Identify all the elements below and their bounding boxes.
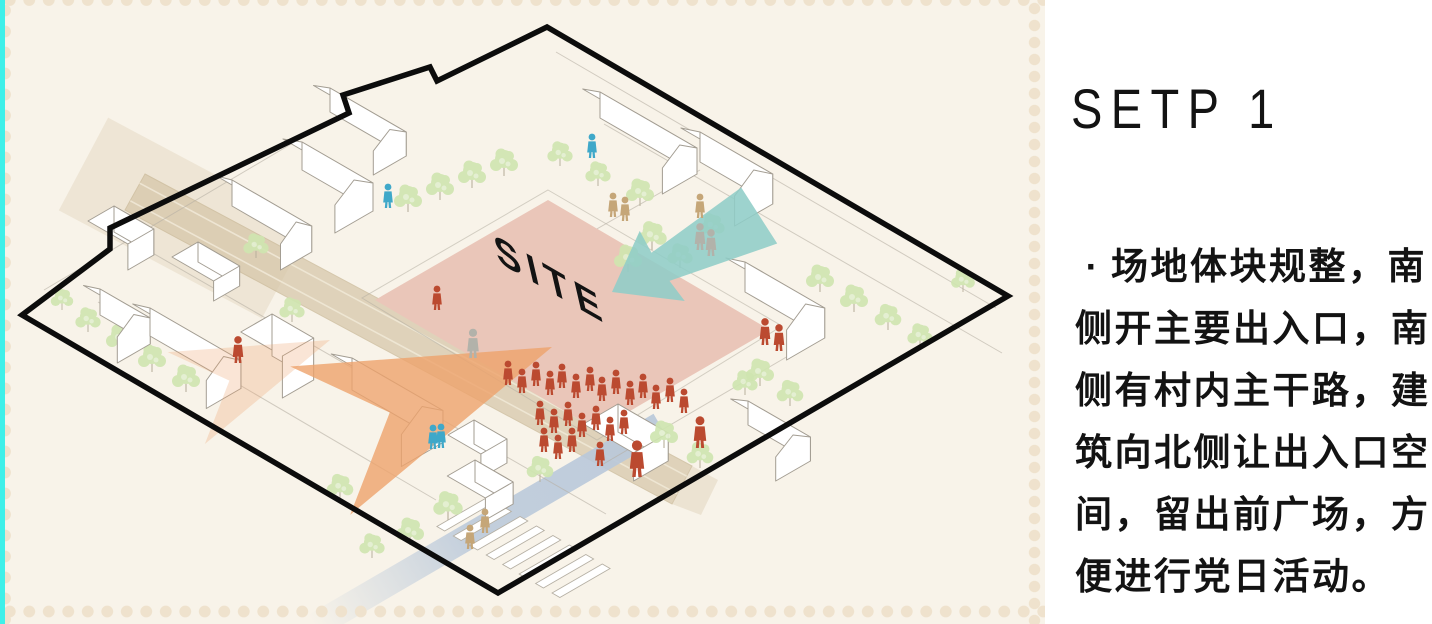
step-title: SETP 1 (1071, 76, 1283, 141)
bullet-point: · (1075, 236, 1111, 298)
description-line: 便进行党日活动。 (1075, 546, 1432, 608)
step-description: ·场地体块规整，南 侧开主要出入口，南 侧有村内主干路，建 筑向北侧让出入口空 … (1075, 236, 1432, 608)
description-line: ·场地体块规整，南 (1075, 236, 1432, 298)
site-axonometric-diagram: SITE (0, 0, 1045, 624)
left-accent-strip (0, 0, 5, 624)
description-text: 场地体块规整，南 (1111, 246, 1427, 287)
step-text-panel: SETP 1 ·场地体块规整，南 侧开主要出入口，南 侧有村内主干路，建 筑向北… (1045, 0, 1432, 624)
description-line: 侧有村内主干路，建 (1075, 360, 1432, 422)
presentation-slide: SITE SETP 1 ·场地体块规整，南 侧开主要出入口，南 侧有村内主干路，… (0, 0, 1432, 624)
site-diagram-panel: SITE (0, 0, 1045, 624)
description-line: 筑向北侧让出入口空 (1075, 422, 1432, 484)
building (731, 399, 811, 481)
description-line: 侧开主要出入口，南 (1075, 298, 1432, 360)
description-line: 间，留出前广场，方 (1075, 484, 1432, 546)
